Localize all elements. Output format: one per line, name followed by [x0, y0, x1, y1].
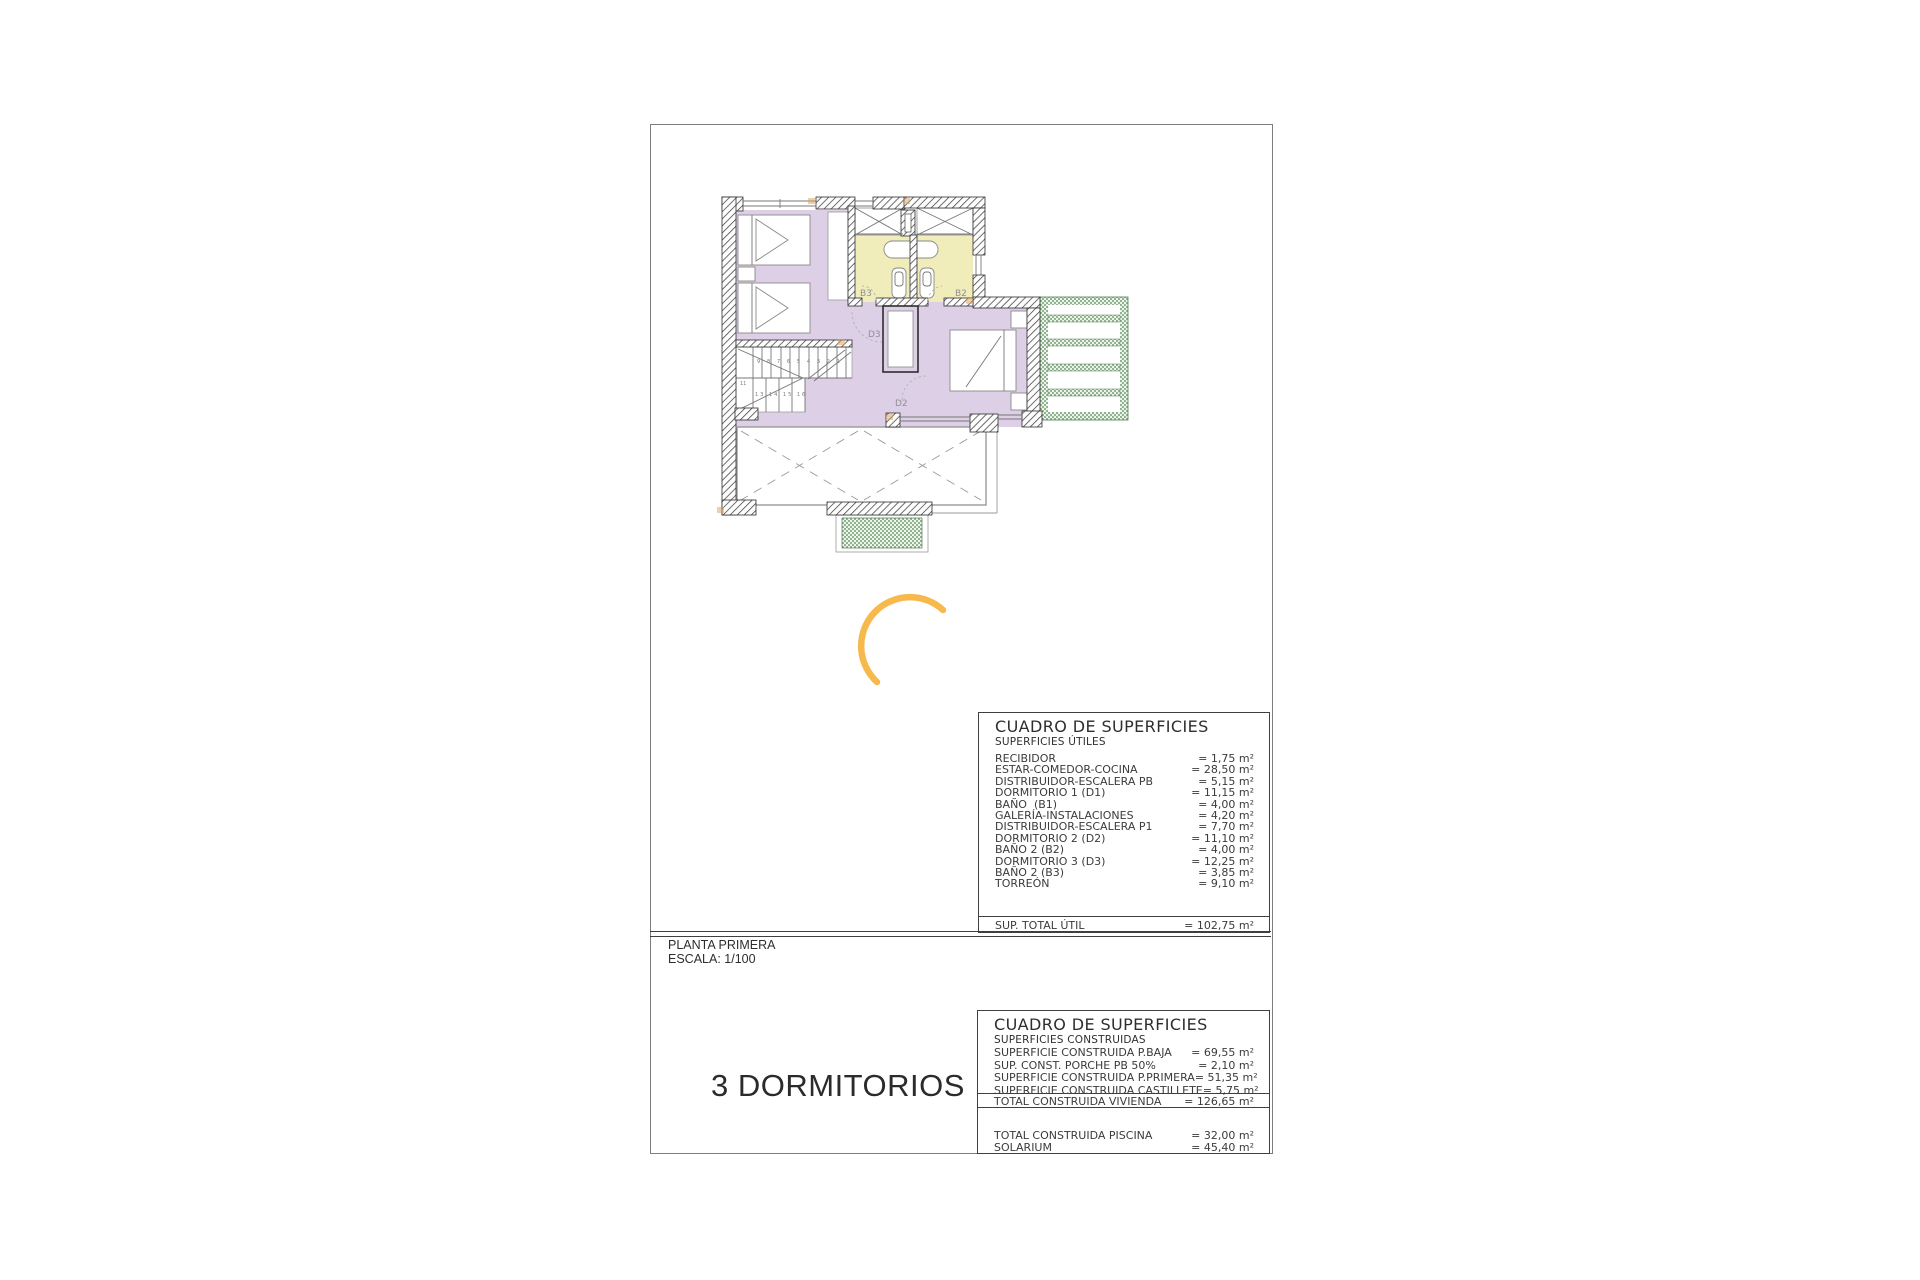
table-row: DORMITORIO 1 (D1)= 11,15 m²	[995, 787, 1254, 798]
surface-table-utiles: CUADRO DE SUPERFICIES SUPERFICIES ÚTILES…	[978, 712, 1270, 933]
utiles-total-row: SUP. TOTAL ÚTIL = 102,75 m²	[995, 919, 1254, 932]
plan-scale: ESCALA: 1/100	[668, 952, 775, 966]
table-row: BAÑO 2 (B2)= 4,00 m²	[995, 844, 1254, 855]
sheet-border	[650, 124, 1273, 1154]
row-value: = 51,35 m²	[1195, 1072, 1258, 1085]
utiles-rows: RECIBIDOR= 1,75 m²ESTAR-COMEDOR-COCINA= …	[995, 753, 1254, 890]
total-value: = 102,75 m²	[1184, 919, 1254, 932]
row-label: DORMITORIO 1 (D1)	[995, 787, 1105, 798]
plan-name-block: PLANTA PRIMERA ESCALA: 1/100	[668, 938, 775, 966]
table-subtitle: SUPERFICIES CONSTRUIDAS	[994, 1034, 1146, 1046]
row-label: BAÑO 2 (B2)	[995, 844, 1064, 855]
construidas-total-row: TOTAL CONSTRUIDA VIVIENDA = 126,65 m²	[994, 1095, 1254, 1108]
table-row: TORREÓN= 9,10 m²	[995, 878, 1254, 889]
variant-title: 3 DORMITORIOS	[711, 1068, 965, 1104]
total-label: SUP. TOTAL ÚTIL	[995, 919, 1084, 932]
row-label: SOLARIUM	[994, 1142, 1052, 1154]
row-value: = 45,40 m²	[1191, 1142, 1254, 1154]
row-label: TORREÓN	[995, 878, 1050, 889]
row-label: SUPERFICIE CONSTRUIDA P.PRIMERA	[994, 1072, 1195, 1085]
table-title: CUADRO DE SUPERFICIES	[995, 717, 1209, 736]
row-value: = 9,10 m²	[1198, 878, 1254, 889]
construidas-rows: SUPERFICIE CONSTRUIDA P.BAJA= 69,55 m²SU…	[994, 1047, 1254, 1097]
plan-name: PLANTA PRIMERA	[668, 938, 775, 952]
total-label: TOTAL CONSTRUIDA VIVIENDA	[994, 1095, 1161, 1108]
page: { "colors": { "room_purple": "#DCCFE6", …	[0, 0, 1920, 1280]
surface-table-construidas: CUADRO DE SUPERFICIES SUPERFICIES CONSTR…	[977, 1010, 1270, 1154]
table-row: SUPERFICIE CONSTRUIDA P.PRIMERA= 51,35 m…	[994, 1072, 1254, 1085]
row-value: = 11,15 m²	[1191, 787, 1254, 798]
row-value: = 69,55 m²	[1191, 1047, 1254, 1060]
table-title: CUADRO DE SUPERFICIES	[994, 1015, 1208, 1034]
table-subtitle: SUPERFICIES ÚTILES	[995, 736, 1106, 748]
table-row: SUPERFICIE CONSTRUIDA P.BAJA= 69,55 m²	[994, 1047, 1254, 1060]
row-value: = 4,00 m²	[1198, 844, 1254, 855]
row-label: SUPERFICIE CONSTRUIDA P.BAJA	[994, 1047, 1172, 1060]
table-row: SOLARIUM= 45,40 m²	[994, 1142, 1254, 1154]
total-value: = 126,65 m²	[1184, 1095, 1254, 1108]
construidas-extra-rows: TOTAL CONSTRUIDA PISCINA= 32,00 m²SOLARI…	[994, 1130, 1254, 1154]
